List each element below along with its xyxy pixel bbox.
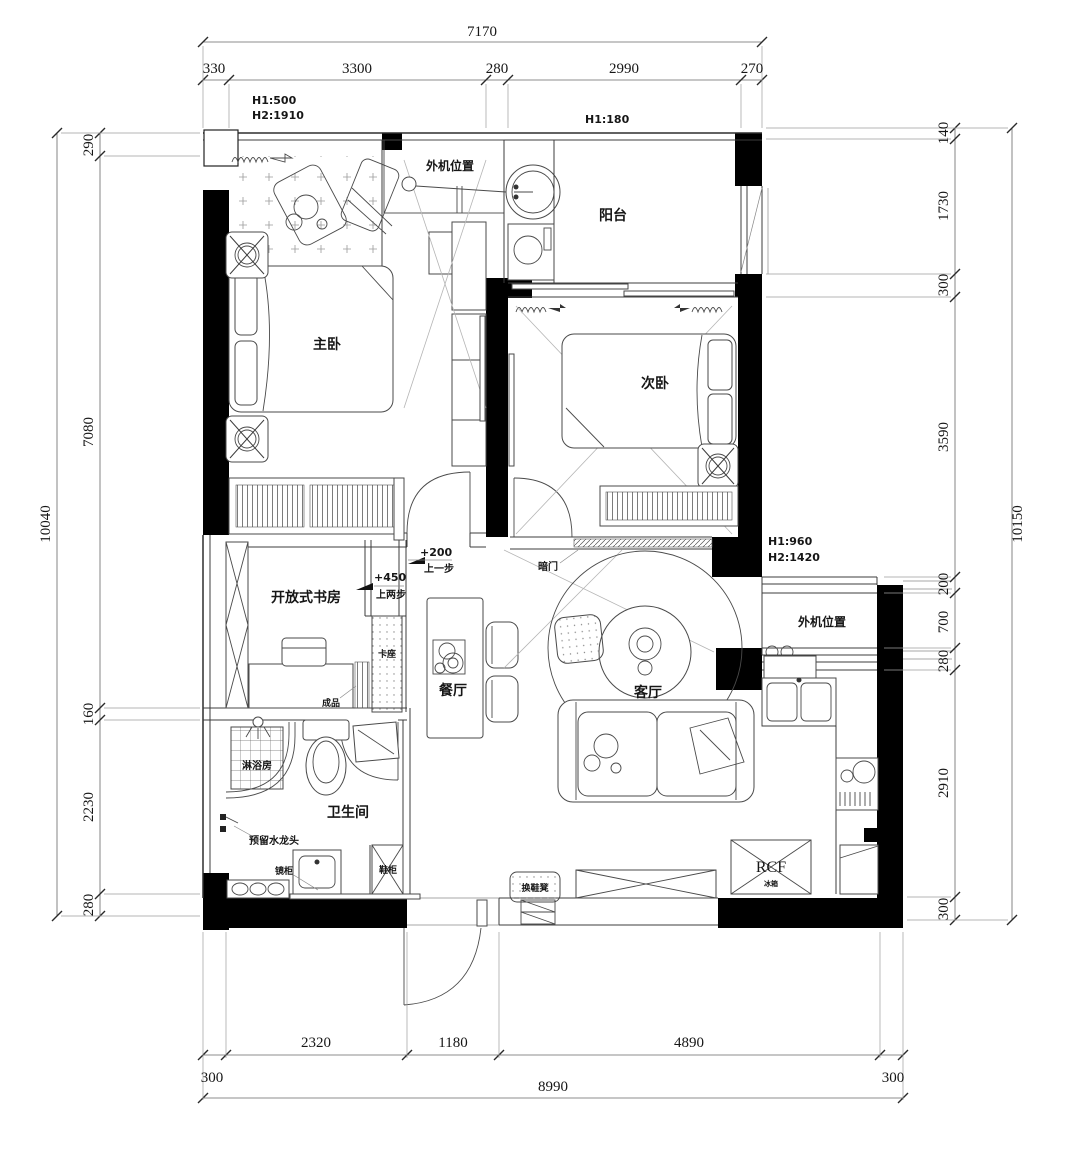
ladder-strip <box>355 662 369 708</box>
dim-right-seg-4: 200 <box>936 573 952 596</box>
second-wardrobe <box>600 486 738 526</box>
corner-cabinet <box>840 845 878 894</box>
wash-counter <box>227 880 289 898</box>
kitchen-sink <box>762 678 836 727</box>
height-note-topleft-2: H2:1910 <box>252 109 304 122</box>
ac-pipe-point <box>402 177 416 191</box>
dim-right-seg-2: 300 <box>936 274 952 297</box>
dim-top-total: 7170 <box>467 24 497 40</box>
label-reserved-faucet: 预留水龙头 <box>249 834 299 847</box>
dim-left-seg-0: 290 <box>81 134 97 157</box>
bookshelf <box>226 542 248 708</box>
label-step2-note: 上两步 <box>376 588 406 601</box>
dimension-chain-bottom: 2320 1180 4890 300 300 8990 <box>198 932 908 1103</box>
dim-right-seg-6: 280 <box>936 650 952 673</box>
label-fridge-cn: 冰箱 <box>764 879 778 888</box>
room-label-shower: 淋浴房 <box>242 759 272 772</box>
dim-right-seg-8: 300 <box>936 898 952 921</box>
master-bedroom-door <box>407 472 470 533</box>
booth-seat <box>372 616 402 712</box>
master-wardrobe <box>229 478 404 540</box>
floor-plan-drawing: 7170 330 3300 280 2990 270 10040 290 708… <box>0 0 1071 1161</box>
reserved-faucet-symbol <box>220 814 252 836</box>
label-step2-elevation: +450 <box>374 571 407 584</box>
label-shoe-bench: 换鞋凳 <box>521 882 549 894</box>
label-shoe-cabinet: 鞋柜 <box>379 864 397 876</box>
dim-right-seg-7: 2910 <box>936 768 952 798</box>
dim-top-seg-0: 330 <box>203 61 226 77</box>
dimension-chain-left: 10040 290 7080 160 2230 280 <box>38 128 200 921</box>
room-label-dining-room: 餐厅 <box>438 682 467 699</box>
balcony-sliding-door <box>512 284 628 289</box>
vanity <box>292 850 341 894</box>
dim-bottom-seg-2: 4890 <box>674 1035 704 1051</box>
entry-bench <box>576 870 716 898</box>
room-label-second-bedroom: 次卧 <box>641 375 669 392</box>
label-ac-outdoor-top: 外机位置 <box>426 158 474 173</box>
dim-bottom-total: 8990 <box>538 1079 568 1095</box>
shower-head <box>253 717 263 727</box>
entrance-door <box>404 900 487 1005</box>
second-bedroom-door <box>514 478 572 537</box>
height-note-balcony: H1:180 <box>585 113 630 126</box>
toilet <box>303 720 349 795</box>
dim-right-seg-3: 3590 <box>936 422 952 452</box>
mirror-strip <box>290 894 420 899</box>
mirror-panel-left <box>480 316 485 421</box>
height-note-right-2: H2:1420 <box>768 551 820 564</box>
dim-left-seg-4: 280 <box>81 894 97 917</box>
dining-chair-2 <box>486 676 518 722</box>
label-step1-elevation: +200 <box>420 546 453 559</box>
label-hidden-door: 暗门 <box>538 560 558 573</box>
laundry-basket <box>353 722 399 762</box>
dim-left-seg-1: 7080 <box>81 417 97 447</box>
room-label-living-room: 客厅 <box>633 684 662 701</box>
master-bed <box>229 266 393 412</box>
dim-bottom-seg-0: 2320 <box>301 1035 331 1051</box>
washing-machine <box>508 224 554 280</box>
room-label-bathroom: 卫生间 <box>327 804 369 821</box>
label-step1-note: 上一步 <box>424 562 454 575</box>
dim-left-seg-3: 2230 <box>81 792 97 822</box>
dim-bottom-left-offset: 300 <box>201 1070 224 1086</box>
dining-chair-1 <box>486 622 518 668</box>
shower-room <box>226 717 295 798</box>
curtain-arrow-3 <box>548 304 566 312</box>
balcony-sliding-door-2 <box>624 291 734 296</box>
master-bedroom <box>226 140 486 540</box>
height-note-topleft-1: H1:500 <box>252 94 297 107</box>
mirror-panel-right <box>509 354 514 466</box>
height-note-right-1: H1:960 <box>768 535 813 548</box>
entry <box>510 870 716 924</box>
label-fridge-code: RCF <box>756 859 786 876</box>
dim-left-seg-2: 160 <box>81 703 97 726</box>
label-ac-outdoor-right: 外机位置 <box>798 614 846 629</box>
hidden-door-panel <box>574 539 712 547</box>
dim-bottom-seg-1: 1180 <box>438 1035 467 1051</box>
floor-plan-page: 7170 330 3300 280 2990 270 10040 290 708… <box>0 0 1071 1161</box>
label-booth-seat: 卡座 <box>378 648 396 660</box>
sofa <box>558 700 754 802</box>
desk <box>249 638 353 708</box>
lamp-symbol-3 <box>698 444 738 488</box>
dim-left-total: 10040 <box>38 505 54 543</box>
dim-right-seg-5: 700 <box>936 611 952 634</box>
lamp-symbol-2 <box>226 416 268 462</box>
dim-right-total: 10150 <box>1010 505 1026 543</box>
room-label-open-study: 开放式书房 <box>271 589 341 606</box>
ac-niche-top <box>384 140 504 213</box>
dim-right-seg-0: 140 <box>936 122 952 145</box>
label-finished-item: 成品 <box>322 697 340 709</box>
dim-top-seg-3: 2990 <box>609 61 639 77</box>
room-label-balcony: 阳台 <box>599 207 627 224</box>
curtain-squiggle-4 <box>692 308 722 313</box>
dim-right-seg-1: 1730 <box>936 191 952 221</box>
pouf <box>554 614 605 665</box>
dim-bottom-right-offset: 300 <box>882 1070 905 1086</box>
room-label-master-bedroom: 主卧 <box>313 336 341 353</box>
zigzag-strip <box>521 900 555 924</box>
dim-top-seg-4: 270 <box>741 61 764 77</box>
hall-cabinet <box>429 222 486 466</box>
label-mirror-cabinet: 镜柜 <box>275 865 293 877</box>
lamp-symbol-1 <box>226 232 268 278</box>
open-study <box>226 542 452 712</box>
curtain-arrow-4 <box>674 304 690 312</box>
second-bedroom <box>509 304 738 534</box>
dim-top-seg-1: 3300 <box>342 61 372 77</box>
stove <box>836 758 878 810</box>
dim-top-seg-2: 280 <box>486 61 509 77</box>
